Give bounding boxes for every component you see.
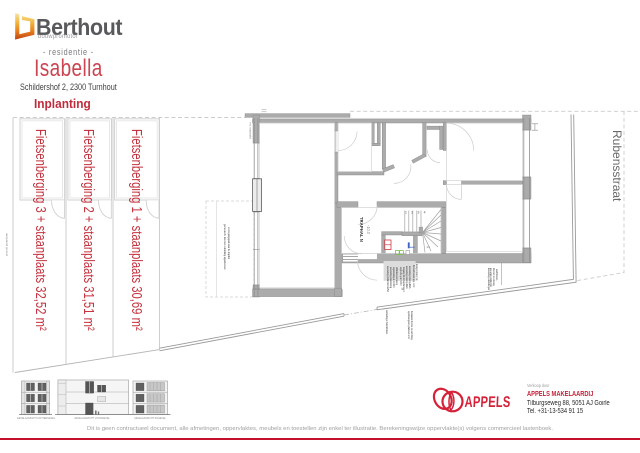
svg-text:GEVELAANZICHT VOORGEVEL: GEVELAANZICHT VOORGEVEL [74,417,110,420]
svg-text:GEVELAANZICHT ZIJGEVEL: GEVELAANZICHT ZIJGEVEL [134,417,167,420]
svg-text:niv. maaiveld: niv. maaiveld [249,123,253,140]
svg-text:1 2 3 4: 1 2 3 4 [405,211,427,215]
svg-text:13: 13 [427,245,431,249]
svg-text:GEVELAANZICHT ACHTERGEVEL: GEVELAANZICHT ACHTERGEVEL [17,417,56,420]
